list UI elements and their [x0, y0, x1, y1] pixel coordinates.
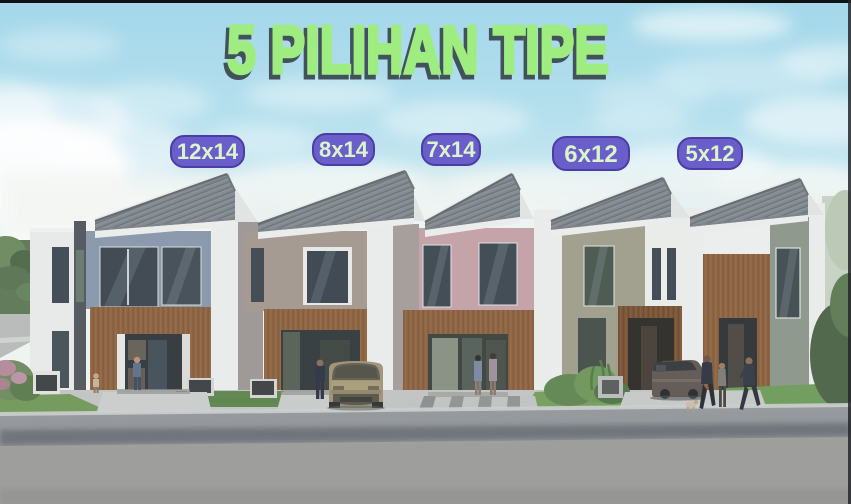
svg-text:5 PILIHAN TIPE: 5 PILIHAN TIPE — [227, 12, 609, 88]
svg-text:12x14: 12x14 — [177, 139, 239, 164]
svg-text:6x12: 6x12 — [564, 141, 617, 168]
svg-text:8x14: 8x14 — [319, 137, 369, 162]
svg-text:7x14: 7x14 — [427, 137, 477, 162]
svg-text:5x12: 5x12 — [686, 141, 735, 166]
